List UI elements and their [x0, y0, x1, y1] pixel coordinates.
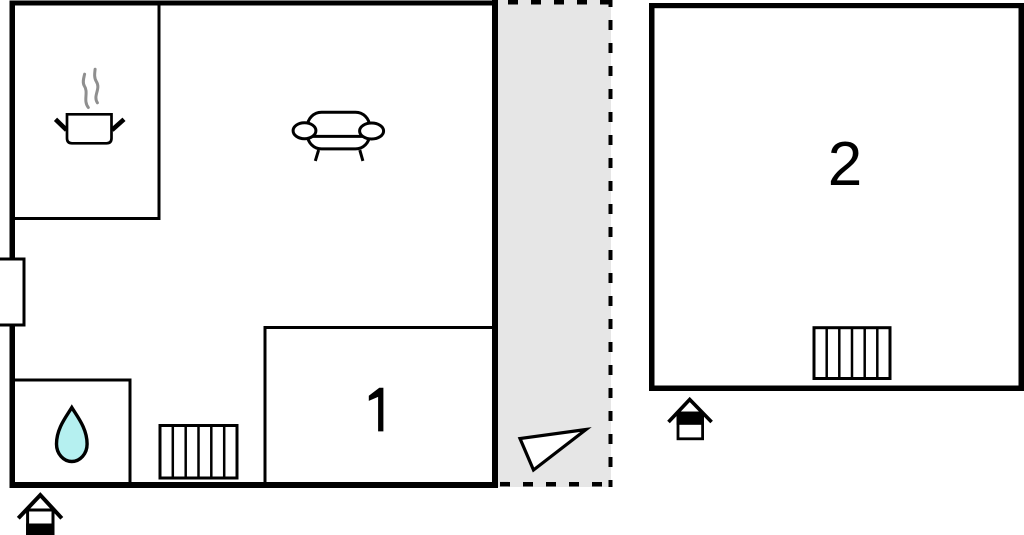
svg-text:2: 2 — [828, 130, 862, 199]
